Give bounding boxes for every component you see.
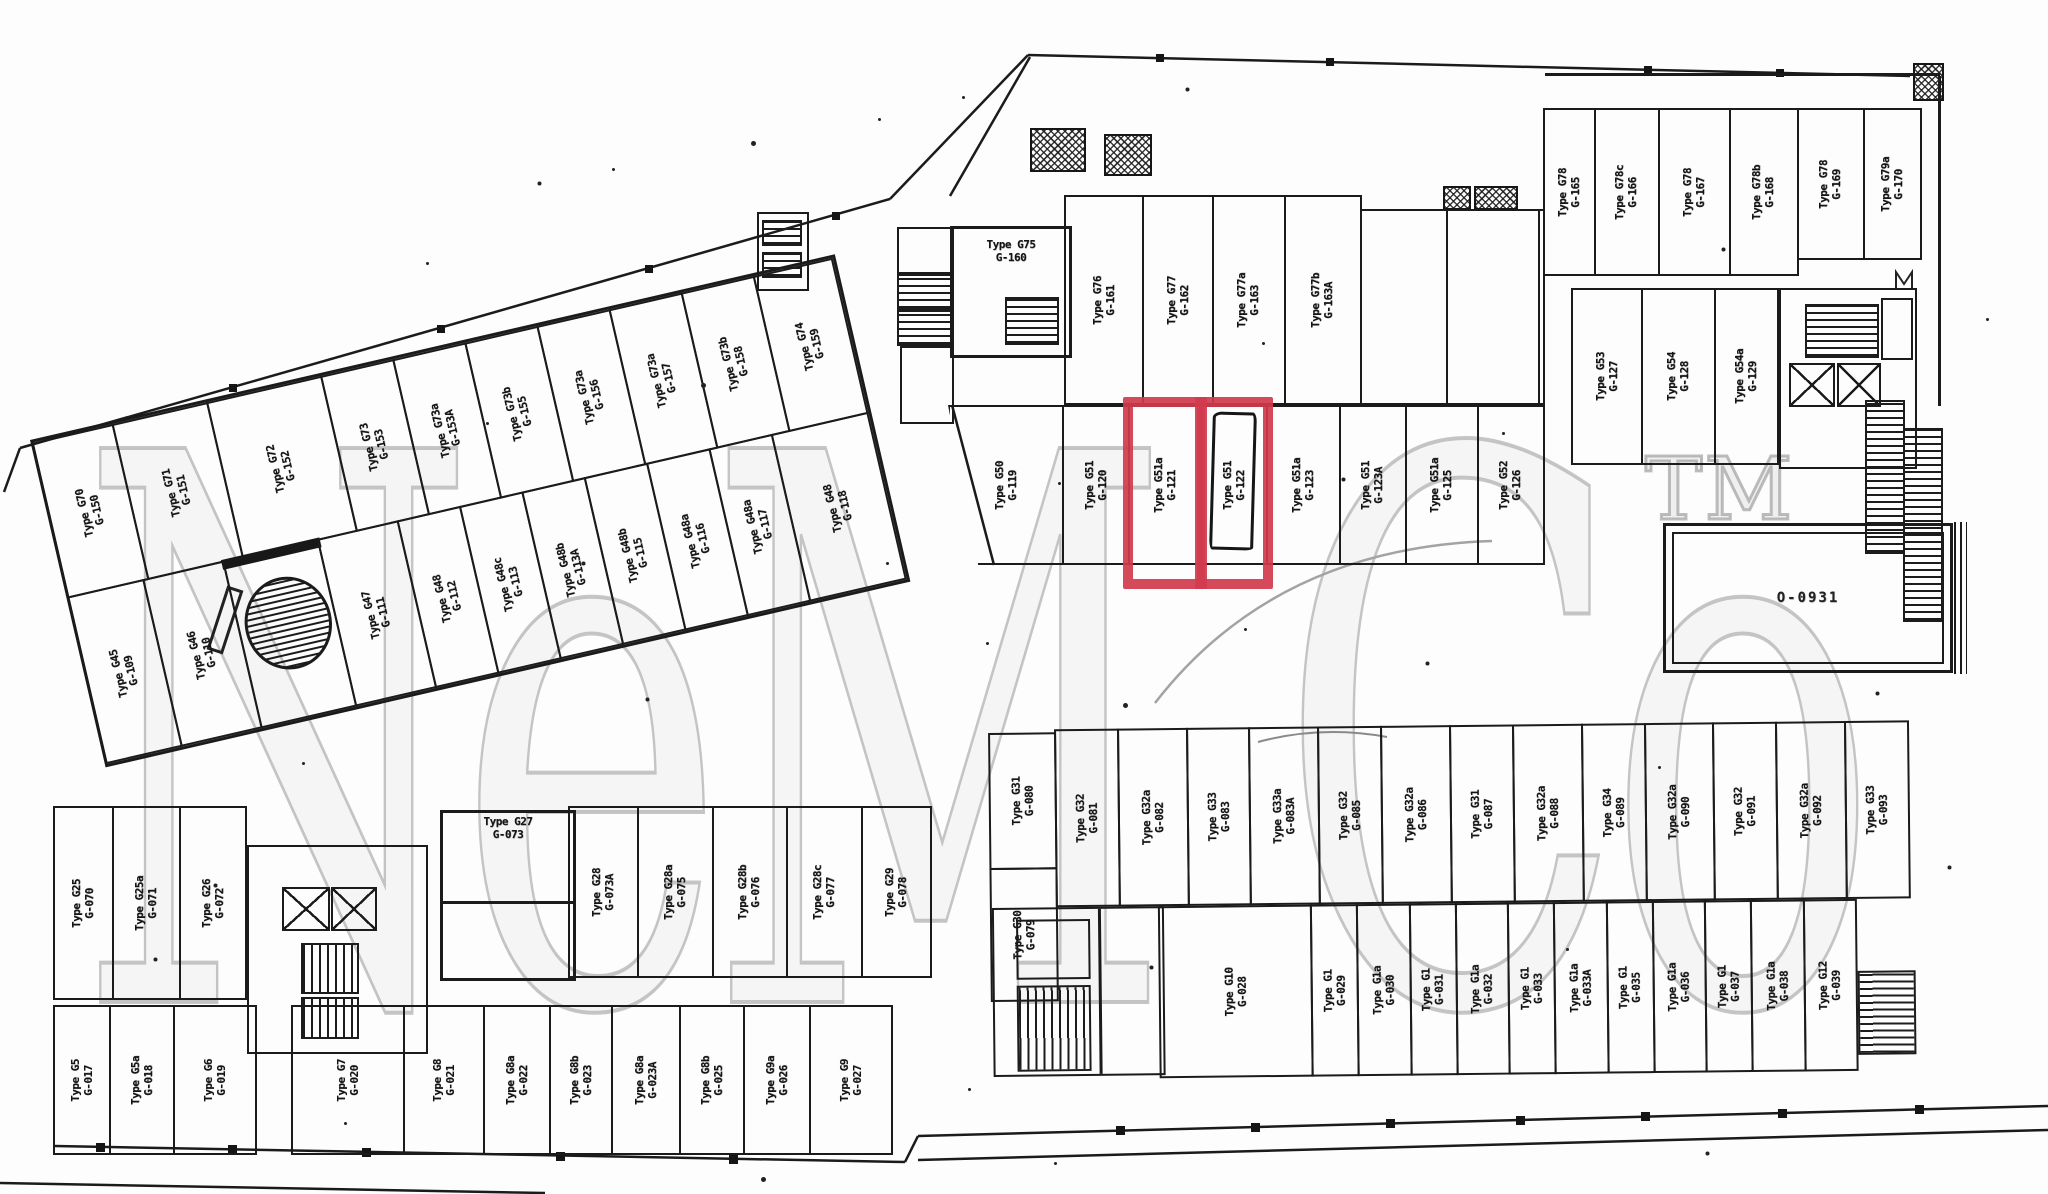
unit-cell: Type G1a G-033A: [1553, 902, 1609, 1075]
unit-cell: Type G79a G-170: [1863, 108, 1922, 260]
unit-label: Type G32a G-090: [1667, 784, 1693, 839]
unit-label: Type G73b G-158: [717, 333, 754, 392]
unit-label: Type G74 G-159: [793, 318, 828, 371]
unit-label: Type G5a G-018: [129, 1056, 154, 1105]
stairs-icon: [301, 943, 359, 994]
unit-cell: Type G32a G-082: [1117, 728, 1190, 907]
unit-cell: Type G50 G-119: [948, 405, 1064, 565]
unit-label: Type G48a G-117: [741, 495, 778, 554]
unit-type: Type G1: [1716, 965, 1729, 1008]
unit-number: G-125: [1442, 457, 1455, 512]
unit-number: G-170: [1893, 156, 1906, 211]
unit-cell: Type G31 G-080: [988, 732, 1057, 870]
unit-type: Type G32: [1075, 793, 1088, 842]
unit-number: G-076: [750, 864, 763, 919]
stairs-icon: [1005, 297, 1059, 345]
service-rooms: [897, 227, 954, 274]
floor-plan: NeM Co TM: [0, 0, 2048, 1194]
unit-number: G-073: [443, 829, 573, 842]
unit-type: Type G8a: [504, 1056, 517, 1105]
unit-label: Type G76 G-161: [1091, 276, 1116, 325]
unit-type: Type G32a: [1535, 786, 1548, 841]
unit-cell: Type G52 G-126: [1477, 405, 1545, 565]
unit-cell: Type G54 G-128: [1641, 288, 1716, 465]
unit-number: G-023A: [646, 1056, 659, 1105]
unit-cell: Type G33a G-083A: [1248, 727, 1321, 906]
unit-type: Type G25: [71, 879, 84, 928]
unit-label: Type G32 G-091: [1733, 786, 1759, 835]
unit-number: G-093: [1877, 785, 1890, 834]
unit-label: Type G32 G-081: [1075, 793, 1101, 842]
unit-cell: Type G5a G-018: [109, 1005, 175, 1155]
service-rooms: [1881, 298, 1913, 360]
stair-tower: [757, 212, 809, 291]
unit-type: Type G1: [1322, 969, 1335, 1012]
unit-cell: Type G77 G-162: [1142, 195, 1214, 405]
unit-label: Type G9a G-026: [764, 1056, 789, 1105]
unit-cell: Type G25a G-071: [112, 806, 181, 1000]
unit-cell: Type G32 G-091: [1712, 722, 1779, 901]
unit-label: Type G73 G-153: [357, 419, 392, 472]
unit-number: G-126: [1511, 461, 1524, 510]
stairs-icon: [897, 310, 954, 346]
unit-number: G-039: [1830, 961, 1843, 1010]
unit-label: Type G54a G-129: [1734, 349, 1759, 404]
unit-label: Type G33 G-093: [1865, 785, 1891, 834]
unit-label: Type G28b G-076: [737, 864, 762, 919]
unit-number: G-038: [1778, 961, 1791, 1010]
unit-label: Type G26 G-072: [200, 879, 225, 928]
unit-type: Type G51: [1360, 461, 1373, 510]
unit-type: Type G1a: [1371, 965, 1384, 1014]
unit-label: Type G79a G-170: [1880, 156, 1905, 211]
unit-label: Type G78b G-168: [1751, 164, 1776, 219]
unit-number: G-165: [1569, 168, 1582, 217]
unit-type: Type G77: [1165, 276, 1178, 325]
unit-number: G-029: [1335, 969, 1348, 1012]
wall: [1098, 909, 1103, 1074]
unit-cell: [1446, 209, 1540, 405]
unit-number: G-080: [1023, 777, 1036, 826]
unit-number: G-085: [1350, 791, 1363, 840]
unit-label: Type G8a G-022: [504, 1056, 529, 1105]
unit-type: Type G32a: [1799, 783, 1812, 838]
unit-number: G-163A: [1323, 272, 1336, 327]
unit-label: Type G70 G-150: [73, 485, 108, 538]
unit-label: Type G8b G-025: [699, 1056, 724, 1105]
unit-type: Type G28a: [663, 864, 676, 919]
unit-label: Type G72 G-152: [264, 440, 299, 493]
ne-top-row: Type G78 G-165 Type G78c G-166 Type G78 …: [1545, 108, 1913, 276]
unit-number: G-071: [146, 875, 159, 930]
unit-number: G-036: [1679, 962, 1692, 1011]
unit-number: G-167: [1694, 168, 1707, 217]
unit-number: G-123: [1304, 457, 1317, 512]
unit-type: Type G7: [335, 1059, 348, 1102]
unit-label: Type G8b G-023: [568, 1056, 593, 1105]
unit-cell: Type G32a G-088: [1512, 724, 1585, 903]
unit-label: Type G78 G-167: [1682, 168, 1707, 217]
unit-label: Type G1 G-029: [1322, 969, 1347, 1012]
unit-type: Type G78: [1682, 168, 1695, 217]
ramp-label: O-0931: [1777, 590, 1840, 606]
unit-label: Type G77 G-162: [1165, 276, 1190, 325]
unit-type: Type G5: [69, 1059, 82, 1102]
unit-cell: Type G1 G-031: [1408, 903, 1458, 1075]
unit-number: G-089: [1614, 788, 1627, 837]
unit-label: Type G28 G-073A: [591, 868, 616, 917]
unit-number: G-022: [517, 1056, 530, 1105]
unit-label: Type G1a G-032: [1470, 964, 1496, 1013]
unit-cell: Type G78b G-168: [1729, 108, 1799, 276]
unit-label: Type G28c G-077: [812, 864, 837, 919]
unit-number: G-129: [1746, 349, 1759, 404]
unit-label: Type G25a G-071: [134, 875, 159, 930]
unit-cell-g073: Type G27 G-073: [440, 810, 576, 981]
sw-row2: Type G5 G-017 Type G5a G-018 Type G6 G-0…: [55, 1005, 893, 1155]
unit-label: Type G48a G-116: [679, 510, 716, 569]
unit-type: Type G75: [953, 239, 1069, 252]
unit-cell: Type G51 G-123A: [1339, 405, 1407, 565]
unit-label: Type G8a G-023A: [633, 1056, 658, 1105]
service-rooms: [1016, 919, 1091, 980]
unit-label: Type G78 G-169: [1818, 160, 1843, 209]
unit-label: Type G1a G-033A: [1568, 963, 1594, 1012]
unit-number: G-018: [142, 1056, 155, 1105]
unit-type: Type G5a: [129, 1056, 142, 1105]
unit-cell: Type G32a G-092: [1775, 721, 1848, 900]
unit-number: G-017: [82, 1059, 95, 1102]
unit-label: Type G31 G-087: [1470, 789, 1496, 838]
unit-cell: Type G33 G-083: [1186, 727, 1253, 906]
unit-label: Type G47 G-111: [359, 587, 394, 640]
unit-cell: Type G51a G-123: [1266, 405, 1340, 565]
unit-type: Type G78: [1557, 168, 1570, 217]
unit-number: G-021: [444, 1059, 457, 1102]
unit-label: Type G1a G-036: [1667, 962, 1693, 1011]
stairwell: [992, 906, 1166, 1077]
unit-type: Type G1: [1519, 967, 1532, 1010]
unit-cell: Type G9 G-027: [809, 1005, 893, 1155]
unit-label: Type G45 G-109: [107, 645, 142, 698]
unit-cell: Type G29 G-078: [861, 806, 932, 978]
unit-cell: Type G51 G-122: [1200, 405, 1268, 565]
unit-label: Type G9 G-027: [838, 1059, 863, 1102]
unit-number: G-123A: [1373, 461, 1386, 510]
unit-type: Type G28: [591, 868, 604, 917]
unit-cell: Type G1 G-037: [1704, 900, 1754, 1072]
unit-cell: Type G32 G-085: [1317, 726, 1384, 905]
unit-type: Type G29: [884, 868, 897, 917]
unit-type: Type G51: [1084, 461, 1097, 510]
unit-number: G-168: [1764, 164, 1777, 219]
unit-type: Type G32a: [1404, 787, 1417, 842]
ne-mid-row: Type G53 G-127 Type G54 G-128 Type G54a …: [1573, 288, 1779, 465]
unit-number: G-119: [1006, 461, 1019, 510]
central-block: Type G75 G-160 Type G76 G-161 Type G77 G…: [950, 195, 1545, 565]
unit-cell: Type G32 G-081: [1054, 729, 1121, 908]
ramp-area: O-0931: [1663, 523, 1953, 673]
unit-number: G-090: [1680, 784, 1693, 839]
unit-label: Type G73a G-153A: [429, 399, 466, 458]
unit-number: G-083A: [1285, 788, 1298, 843]
unit-cell: Type G1 G-033: [1507, 902, 1557, 1074]
unit-cell: Type G8b G-025: [679, 1005, 745, 1155]
unit-number: G-092: [1811, 783, 1824, 838]
unit-type: Type G27: [443, 816, 573, 829]
unit-cell: Type G28c G-077: [786, 806, 863, 978]
unit-label: Type G1 G-031: [1421, 968, 1446, 1011]
unit-number: G-035: [1630, 966, 1643, 1009]
unit-cell: Type G1a G-032: [1455, 903, 1511, 1076]
unit-type: Type G6: [202, 1059, 215, 1102]
unit-label: Type G46 G-110: [185, 627, 220, 680]
unit-cell: Type G34 G-089: [1581, 723, 1648, 902]
unit-number: G-087: [1482, 789, 1495, 838]
unit-number: G-161: [1104, 276, 1117, 325]
unit-cell: [1360, 209, 1448, 405]
unit-label: Type G78c G-166: [1614, 164, 1639, 219]
sw-row1b: Type G28 G-073A Type G28a G-075 Type G28…: [570, 806, 932, 978]
unit-cell: Type G28 G-073A: [568, 806, 639, 978]
service-rooms: [900, 346, 954, 424]
unit-label: Type G34 G-089: [1601, 788, 1627, 837]
unit-number: G-122: [1234, 461, 1247, 510]
unit-number: G-121: [1165, 457, 1178, 512]
unit-number: G-075: [675, 864, 688, 919]
unit-cell: Type G5 G-017: [53, 1005, 111, 1155]
unit-type: Type G8: [431, 1059, 444, 1102]
unit-label: Type G52 G-126: [1498, 461, 1523, 510]
unit-cell: Type G6 G-019: [173, 1005, 257, 1155]
unit-cell: Type G31 G-087: [1449, 724, 1516, 903]
unit-cell: Type G54a G-129: [1714, 288, 1779, 465]
unit-label: Type G48 G-112: [430, 570, 465, 623]
unit-label: Type G27 G-073: [443, 816, 573, 841]
unit-cell: Type G8b G-023: [549, 1005, 613, 1155]
unit-cell: Type G1a G-036: [1652, 900, 1708, 1073]
scan-noise: [0, 0, 3, 3]
unit-label: Type G7 G-020: [335, 1059, 360, 1102]
unit-cell: Type G33 G-093: [1844, 720, 1911, 899]
unit-cell: Type G9a G-026: [743, 1005, 811, 1155]
unit-cell: Type G77b G-163A: [1284, 195, 1362, 405]
unit-type: Type G10: [1223, 967, 1236, 1016]
unit-number: G-160: [953, 252, 1069, 265]
elevator-icon: [282, 887, 330, 931]
unit-cell: Type G51 G-120: [1062, 405, 1130, 565]
unit-type: Type G1a: [1765, 961, 1778, 1010]
wall: [443, 901, 573, 904]
unit-label: Type G28a G-075: [663, 864, 688, 919]
unit-cell: Type G1 G-035: [1605, 901, 1655, 1073]
unit-cell: Type G8a G-022: [483, 1005, 551, 1155]
unit-number: G-169: [1831, 160, 1844, 209]
unit-cell: Type G1 G-029: [1310, 904, 1360, 1076]
unit-label: Type G1 G-037: [1716, 965, 1741, 1008]
unit-type: Type G32a: [1140, 790, 1153, 845]
unit-cell: Type G25 G-070: [53, 806, 114, 1000]
unit-cell: Type G7 G-020: [291, 1005, 405, 1155]
unit-number: G-163: [1249, 272, 1262, 327]
unit-label: Type G51 G-122: [1222, 461, 1247, 510]
unit-number: G-033A: [1581, 963, 1594, 1012]
unit-cell: Type G32a G-086: [1380, 725, 1453, 904]
unit-cell: Type G8 G-021: [403, 1005, 485, 1155]
unit-type: Type G76: [1091, 276, 1104, 325]
unit-type: Type G1a: [1568, 963, 1581, 1012]
unit-number: G-026: [777, 1056, 790, 1105]
unit-number: G-019: [215, 1059, 228, 1102]
unit-label: Type G1 G-035: [1618, 966, 1643, 1009]
central-top-row: Type G76 G-161 Type G77 G-162 Type G77a …: [1066, 195, 1545, 405]
unit-number: G-025: [712, 1056, 725, 1105]
unit-number: G-078: [897, 868, 910, 917]
unit-cell: Type G1a G-038: [1750, 899, 1806, 1072]
unit-number: G-082: [1153, 790, 1166, 845]
unit-number: G-070: [83, 879, 96, 928]
se-bottom-row: Type G10 G-028 Type G1 G-029 Type G1a G-…: [1160, 899, 1859, 1078]
unit-type: Type G31: [1010, 777, 1023, 826]
unit-number: G-031: [1433, 968, 1446, 1011]
unit-number: G-127: [1607, 352, 1620, 401]
unit-label: Type G8 G-021: [431, 1059, 456, 1102]
unit-label: Type G33a G-083A: [1272, 788, 1298, 843]
unit-label: Type G32a G-086: [1404, 787, 1430, 842]
unit-label: Type G50 G-119: [993, 461, 1018, 510]
unit-label: Type G32a G-092: [1799, 783, 1825, 838]
unit-type: Type G9a: [764, 1056, 777, 1105]
unit-cell: Type G1a G-030: [1356, 904, 1412, 1077]
unit-number: G-081: [1087, 793, 1100, 842]
unit-label: Type G32a G-082: [1140, 790, 1166, 845]
unit-type: Type G28c: [812, 864, 825, 919]
unit-type: Type G54a: [1734, 349, 1747, 404]
unit-number: G-162: [1178, 276, 1191, 325]
stairs-icon: [762, 252, 802, 278]
unit-type: Type G51a: [1291, 457, 1304, 512]
unit-number: G-073A: [603, 868, 616, 917]
unit-number: G-023: [581, 1056, 594, 1105]
stairs-icon: [1858, 970, 1917, 1055]
unit-cell: Type G26 G-072: [179, 806, 247, 1000]
stairs-icon: [897, 274, 954, 310]
unit-type: Type G34: [1601, 788, 1614, 837]
southeast-block: Type G31 G-080 Type G30 G-079 Type G32: [988, 718, 1918, 1100]
unit-number: G-091: [1745, 786, 1758, 835]
vent-hatch-icon: [1104, 134, 1152, 176]
unit-label: Type G53 G-127: [1594, 352, 1619, 401]
sw-row1: Type G25 G-070 Type G25a G-071 Type G26 …: [55, 806, 247, 1000]
unit-cell: [255, 1005, 293, 1155]
unit-cell: Type G78 G-167: [1658, 108, 1731, 276]
unit-type: Type G33: [1206, 792, 1219, 841]
unit-number: G-032: [1482, 964, 1495, 1013]
unit-number: G-030: [1384, 965, 1397, 1014]
unit-number: G-077: [825, 864, 838, 919]
unit-label: Type G48c G-113: [492, 553, 529, 612]
unit-label: Type G10 G-028: [1223, 967, 1249, 1016]
unit-number: G-037: [1729, 965, 1742, 1008]
unit-label: Type G48b G-115: [617, 524, 654, 583]
unit-label: Type G78 G-165: [1557, 168, 1582, 217]
central-bottom-row: Type G50 G-119 Type G51 G-120 Type G51a …: [950, 405, 1545, 565]
unit-number: G-033: [1532, 967, 1545, 1010]
east-wall: [1938, 76, 1941, 406]
unit-label: Type G51a G-123: [1291, 457, 1316, 512]
unit-label: Type G71 G-151: [160, 464, 195, 517]
unit-cell: Type G10 G-028: [1158, 905, 1314, 1079]
unit-label: Type G51a G-125: [1429, 457, 1454, 512]
unit-label: Type G5 G-017: [69, 1059, 94, 1102]
unit-label: Type G1 G-033: [1519, 967, 1544, 1010]
unit-cell: Type G77a G-163: [1212, 195, 1286, 405]
unit-number: G-086: [1416, 787, 1429, 842]
unit-type: Type G50: [993, 461, 1006, 510]
elevator-icon: [331, 887, 377, 931]
unit-label: Type G48b G-113A: [554, 539, 591, 598]
unit-type: Type G8b: [699, 1056, 712, 1105]
unit-label: Type G73a G-156: [573, 366, 610, 425]
unit-cell: Type G76 G-161: [1064, 195, 1144, 405]
unit-cell: Type G51a G-125: [1405, 405, 1479, 565]
unit-label: Type G73a G-157: [645, 349, 682, 408]
unit-label: Type G54 G-128: [1666, 352, 1691, 401]
unit-type: Type G9: [838, 1059, 851, 1102]
vent-hatch-icon: [1030, 128, 1086, 172]
stairs-icon: [1017, 985, 1092, 1072]
unit-cell: Type G8a G-023A: [611, 1005, 681, 1155]
unit-number: G-088: [1548, 785, 1561, 840]
unit-label: Type G12 G-039: [1818, 961, 1844, 1010]
elevator-icon: [1789, 363, 1835, 407]
unit-type: Type G51a: [1153, 457, 1166, 512]
unit-label: Type G77b G-163A: [1310, 272, 1335, 327]
unit-number: G-027: [851, 1059, 864, 1102]
unit-label: Type G51 G-123A: [1360, 461, 1385, 510]
unit-number: G-083: [1219, 792, 1232, 841]
unit-number: G-028: [1236, 967, 1249, 1016]
unit-cell: Type G32a G-090: [1644, 722, 1717, 901]
unit-cell: Type G53 G-127: [1571, 288, 1643, 465]
unit-label: Type G77a G-163: [1236, 272, 1261, 327]
unit-type: Type G53: [1594, 352, 1607, 401]
stairs-icon: [1805, 304, 1879, 358]
unit-type: Type G25a: [134, 875, 147, 930]
unit-label: Type G73b G-155: [501, 383, 538, 442]
unit-type: Type G26: [200, 879, 213, 928]
unit-label: Type G1a G-030: [1371, 965, 1397, 1014]
unit-type: Type G51a: [1429, 457, 1442, 512]
unit-label: Type G51 G-120: [1084, 461, 1109, 510]
unit-label: Type G25 G-070: [71, 879, 96, 928]
unit-label: Type G6 G-019: [202, 1059, 227, 1102]
unit-label: Type G48 G-118: [821, 480, 856, 533]
unit-number: G-020: [348, 1059, 361, 1102]
unit-cell: Type G28a G-075: [637, 806, 714, 978]
unit-cell-g160: Type G75 G-160: [950, 226, 1072, 358]
unit-type: Type G54: [1666, 352, 1679, 401]
unit-cell: Type G78 G-165: [1543, 108, 1596, 276]
unit-number: G-072: [213, 879, 226, 928]
unit-label: Type G1a G-038: [1765, 961, 1791, 1010]
unit-cell: Type G78c G-166: [1594, 108, 1660, 276]
southwest-block: Type G25 G-070 Type G25a G-071 Type G26 …: [52, 790, 952, 1194]
unit-cell: Type G51a G-121: [1128, 405, 1202, 565]
stairs-icon: [762, 220, 802, 246]
unit-label: Type G75 G-160: [953, 239, 1069, 264]
unit-label: Type G29 G-078: [884, 868, 909, 917]
